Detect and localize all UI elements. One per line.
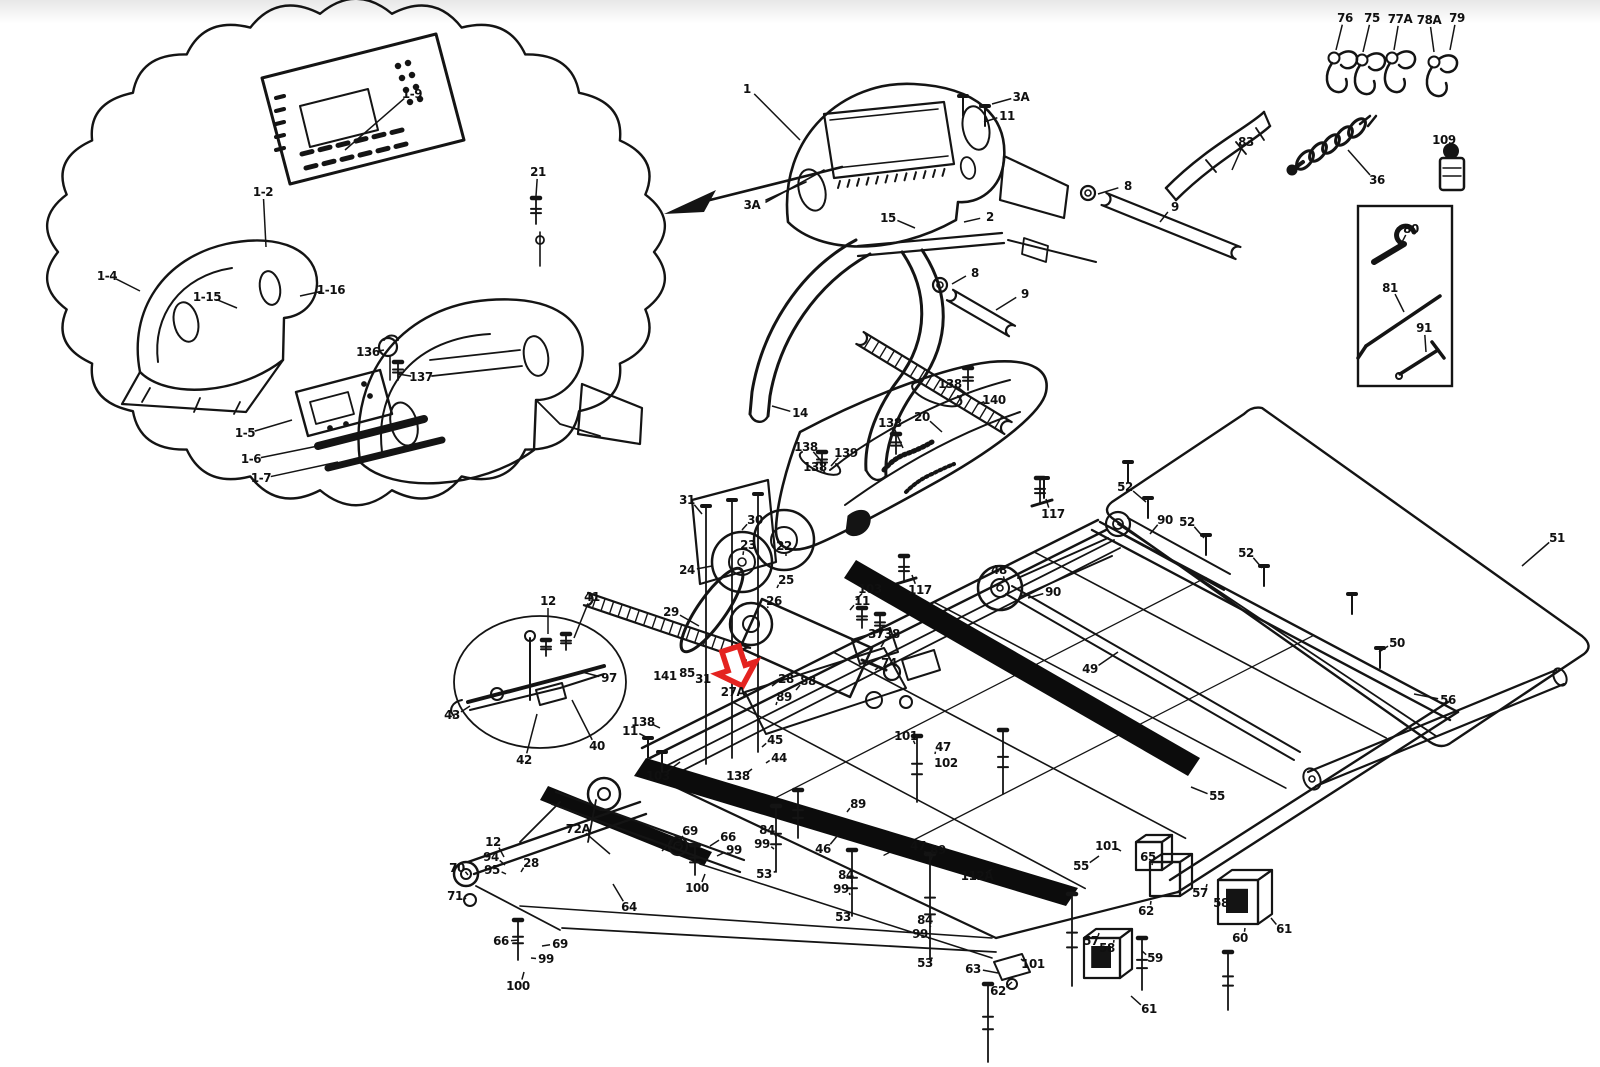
treadmill-parts-diagram: 1-91-21-41-151-16211361371-51-61-713A113… [0,0,1600,1067]
diagram-line-art [0,0,1600,1067]
page-top-shade [0,0,1600,24]
red-arrow-annotation [711,643,761,692]
exploded-view-artwork [47,0,1588,1062]
